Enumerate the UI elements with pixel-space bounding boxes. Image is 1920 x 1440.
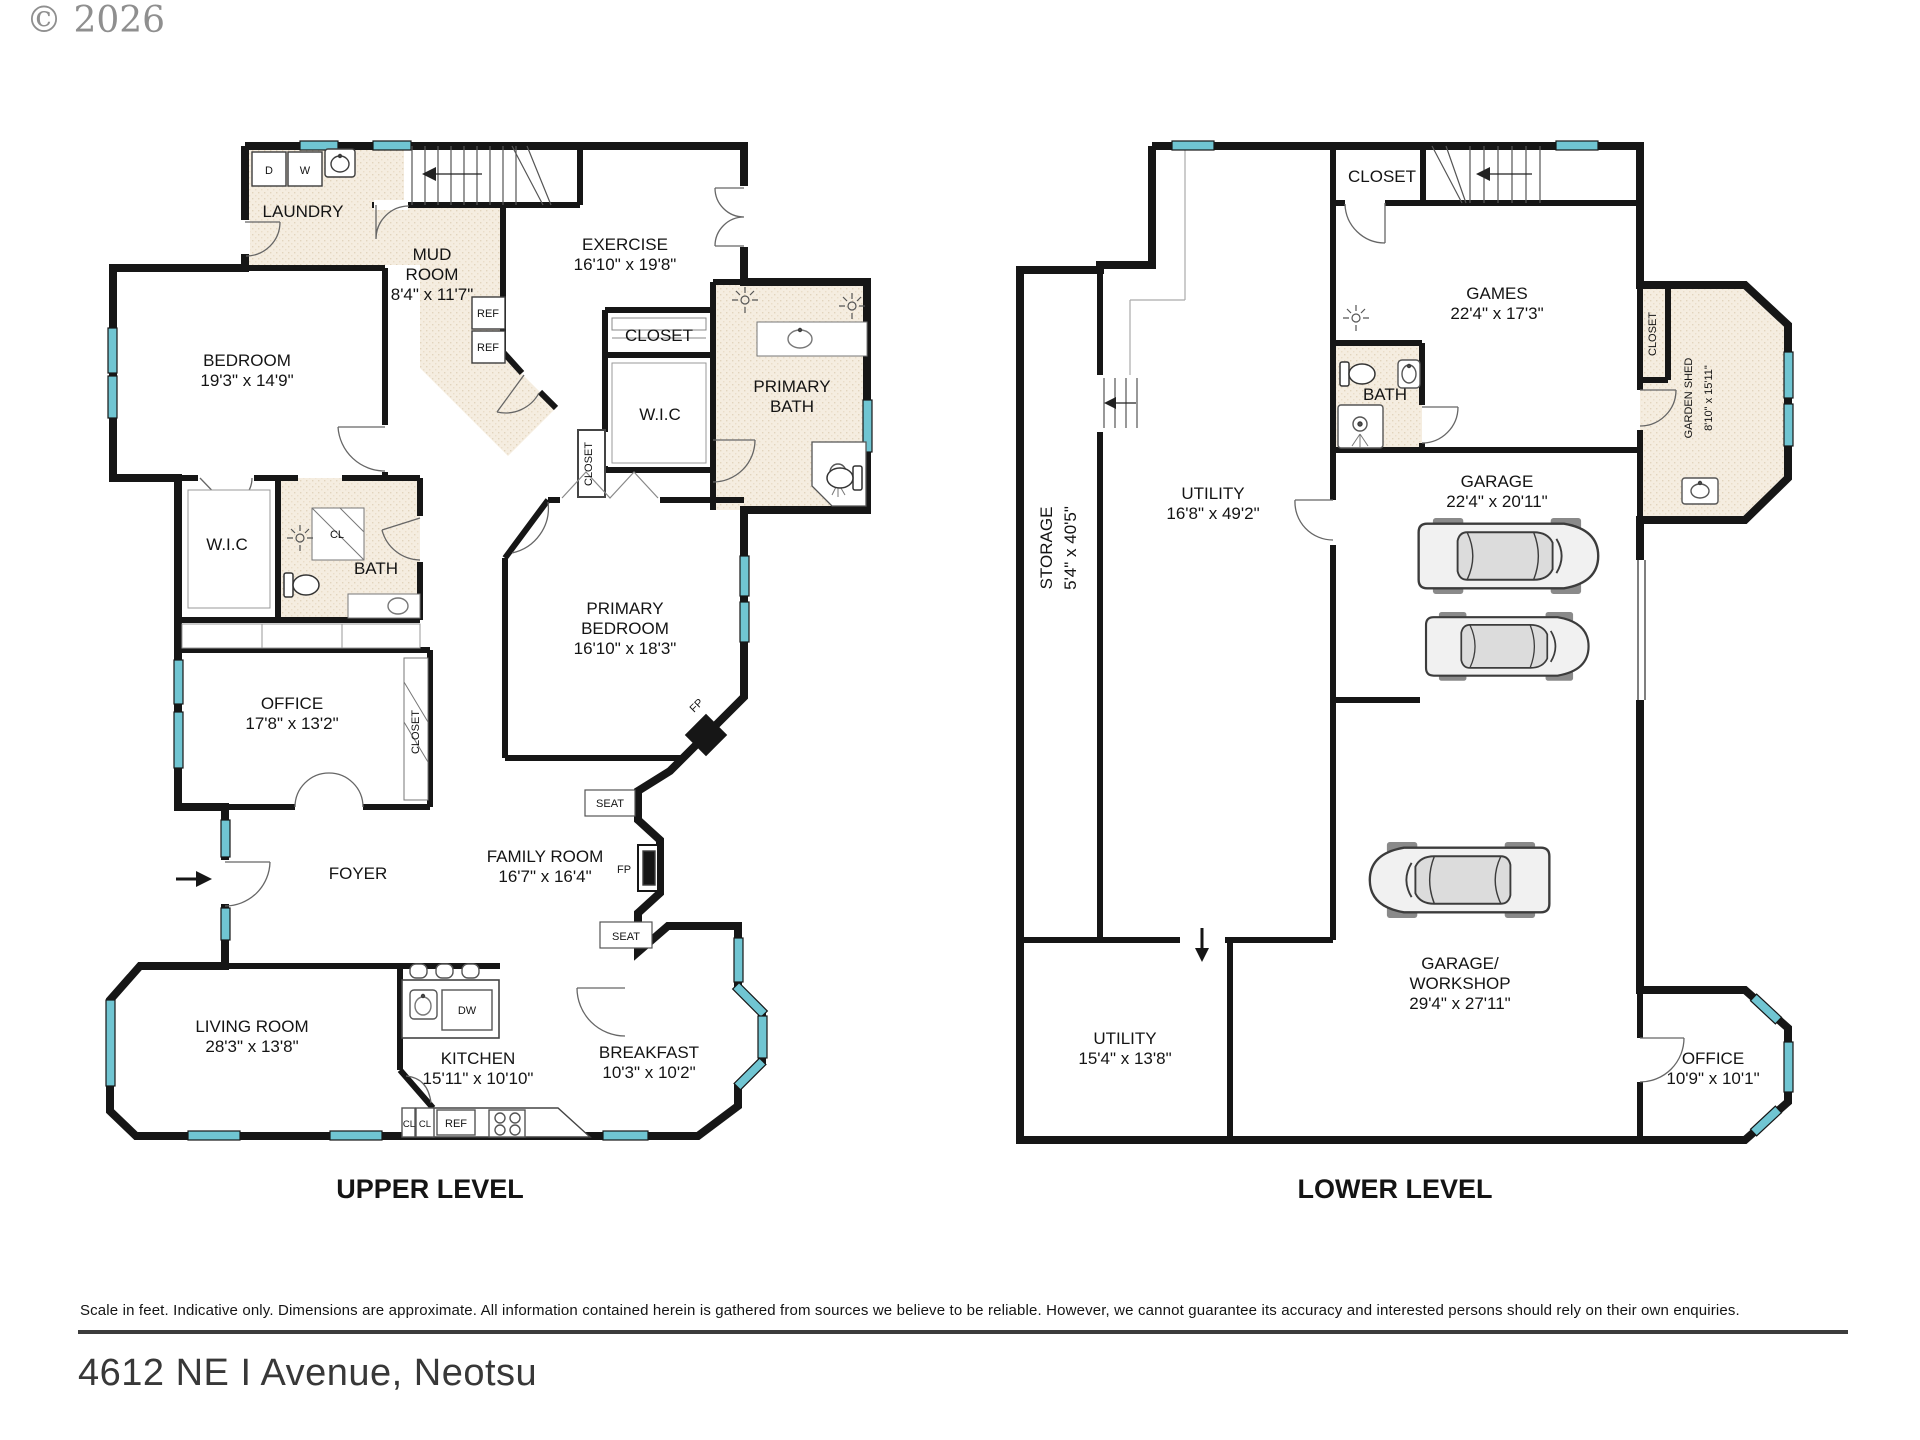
label-living-room-dims: 28'3" x 13'8" <box>205 1037 298 1056</box>
label-family-room: FAMILY ROOM <box>487 847 604 866</box>
label-bath: BATH <box>354 559 398 578</box>
lower-stairs-arrow <box>1476 167 1490 181</box>
entry-arrow-head <box>196 871 212 887</box>
label-wic-mid: W.I.C <box>639 405 681 424</box>
label-kitchen-dims: 15'11" x 10'10" <box>423 1069 534 1088</box>
disclaimer-text: Scale in feet. Indicative only. Dimensio… <box>80 1302 1740 1319</box>
label-seat-top: SEAT <box>596 798 624 810</box>
storage-steps-arrow <box>1104 397 1116 409</box>
label-closet-corridor: CLOSET <box>583 442 595 486</box>
label-mudroom-1: MUD <box>413 245 452 264</box>
label-storage-dims: 5'4" x 40'5" <box>1061 506 1080 590</box>
label-garden-shed: GARDEN SHED <box>1683 358 1695 439</box>
property-address: 4612 NE I Avenue, Neotsu <box>78 1352 537 1395</box>
label-living-room: LIVING ROOM <box>195 1017 308 1036</box>
label-cl2: CL <box>419 1119 431 1130</box>
label-primary-bedroom-1: PRIMARY <box>586 599 663 618</box>
label-garage: GARAGE <box>1461 472 1534 491</box>
label-dryer: D <box>265 165 273 177</box>
label-cl1: CL <box>403 1119 415 1130</box>
utility-entry-arrow-head <box>1195 948 1209 962</box>
label-mudroom-2: ROOM <box>406 265 459 284</box>
label-workshop-dims: 29'4" x 27'11" <box>1409 994 1510 1013</box>
label-breakfast-dims: 10'3" x 10'2" <box>602 1063 695 1082</box>
label-bedroom-dims: 19'3" x 14'9" <box>200 371 293 390</box>
label-closet-top: CLOSET <box>1348 167 1416 186</box>
lower-floor-plan: CLOSET GAMES 22'4" x 17'3" BATH CLOSET G… <box>1020 141 1793 1204</box>
label-family-room-dims: 16'7" x 16'4" <box>498 867 591 886</box>
label-ref2: REF <box>477 342 499 354</box>
upper-stairs-arrow <box>422 167 436 181</box>
lower-level-title: LOWER LEVEL <box>1298 1174 1493 1204</box>
label-fp-side: FP <box>617 864 631 876</box>
label-wic-left: W.I.C <box>206 535 248 554</box>
label-office-lower: OFFICE <box>1682 1049 1744 1068</box>
label-office-dims: 17'8" x 13'2" <box>245 714 338 733</box>
label-primary-bedroom-dims: 16'10" x 18'3" <box>574 639 677 658</box>
label-primary-bath-1: PRIMARY <box>753 377 830 396</box>
label-primary-bath-2: BATH <box>770 397 814 416</box>
label-ref1: REF <box>477 308 499 320</box>
label-bedroom: BEDROOM <box>203 351 291 370</box>
label-utility-lower-dims: 15'4" x 13'8" <box>1078 1049 1171 1068</box>
label-primary-bedroom-2: BEDROOM <box>581 619 669 638</box>
label-office-lower-dims: 10'9" x 10'1" <box>1666 1069 1759 1088</box>
label-workshop-2: WORKSHOP <box>1409 974 1510 993</box>
label-breakfast: BREAKFAST <box>599 1043 699 1062</box>
label-workshop-1: GARAGE/ <box>1421 954 1499 973</box>
label-utility-lower: UTILITY <box>1093 1029 1156 1048</box>
label-foyer: FOYER <box>329 864 388 883</box>
label-garden-shed-dims: 8'10" x 15'11" <box>1703 365 1715 431</box>
label-cl-bath: CL <box>330 529 344 541</box>
label-exercise-dims: 16'10" x 19'8" <box>574 255 677 274</box>
footer-divider <box>78 1330 1848 1334</box>
floor-plans-canvas: LAUNDRY D W MUD ROOM 8'4" x 11'7" EXERCI… <box>0 0 1920 1260</box>
label-ref-kitchen: REF <box>445 1118 467 1130</box>
label-seat-bottom: SEAT <box>612 931 640 943</box>
label-bath-lower: BATH <box>1363 385 1407 404</box>
label-closet-mid: CLOSET <box>625 326 693 345</box>
upper-level-title: UPPER LEVEL <box>336 1174 524 1204</box>
label-exercise: EXERCISE <box>582 235 668 254</box>
garage-door <box>1638 560 1645 700</box>
label-washer: W <box>300 165 311 177</box>
label-storage: STORAGE <box>1037 507 1056 590</box>
label-games: GAMES <box>1466 284 1527 303</box>
label-garage-dims: 22'4" x 20'11" <box>1446 492 1547 511</box>
label-games-dims: 22'4" x 17'3" <box>1450 304 1543 323</box>
label-utility-main: UTILITY <box>1181 484 1244 503</box>
label-utility-main-dims: 16'8" x 49'2" <box>1166 504 1259 523</box>
label-closet-office: CLOSET <box>410 710 422 754</box>
label-fp-corner: FP <box>688 697 706 715</box>
label-office: OFFICE <box>261 694 323 713</box>
label-dw: DW <box>458 1005 477 1017</box>
label-laundry: LAUNDRY <box>263 202 344 221</box>
label-closet-shed: CLOSET <box>1647 312 1659 356</box>
upper-floor-plan: LAUNDRY D W MUD ROOM 8'4" x 11'7" EXERCI… <box>106 141 872 1204</box>
label-kitchen: KITCHEN <box>441 1049 516 1068</box>
label-mudroom-dims: 8'4" x 11'7" <box>391 285 474 304</box>
